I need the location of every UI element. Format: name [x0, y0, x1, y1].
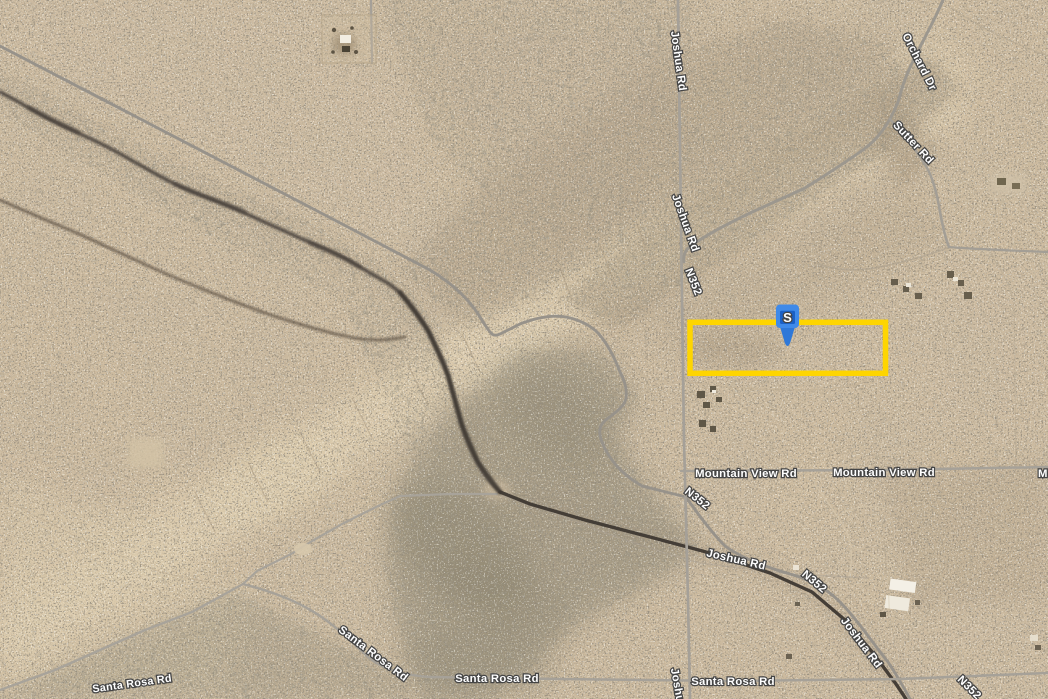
svg-text:S: S	[783, 310, 792, 325]
svg-text:Mountain View Rd: Mountain View Rd	[695, 468, 797, 480]
svg-text:Mountain View Rd: Mountain View Rd	[833, 467, 935, 479]
svg-text:Santa Rosa Rd: Santa Rosa Rd	[455, 673, 539, 685]
svg-text:Mountain: Mountain	[1038, 468, 1048, 480]
svg-text:Santa Rosa Rd: Santa Rosa Rd	[691, 676, 775, 688]
